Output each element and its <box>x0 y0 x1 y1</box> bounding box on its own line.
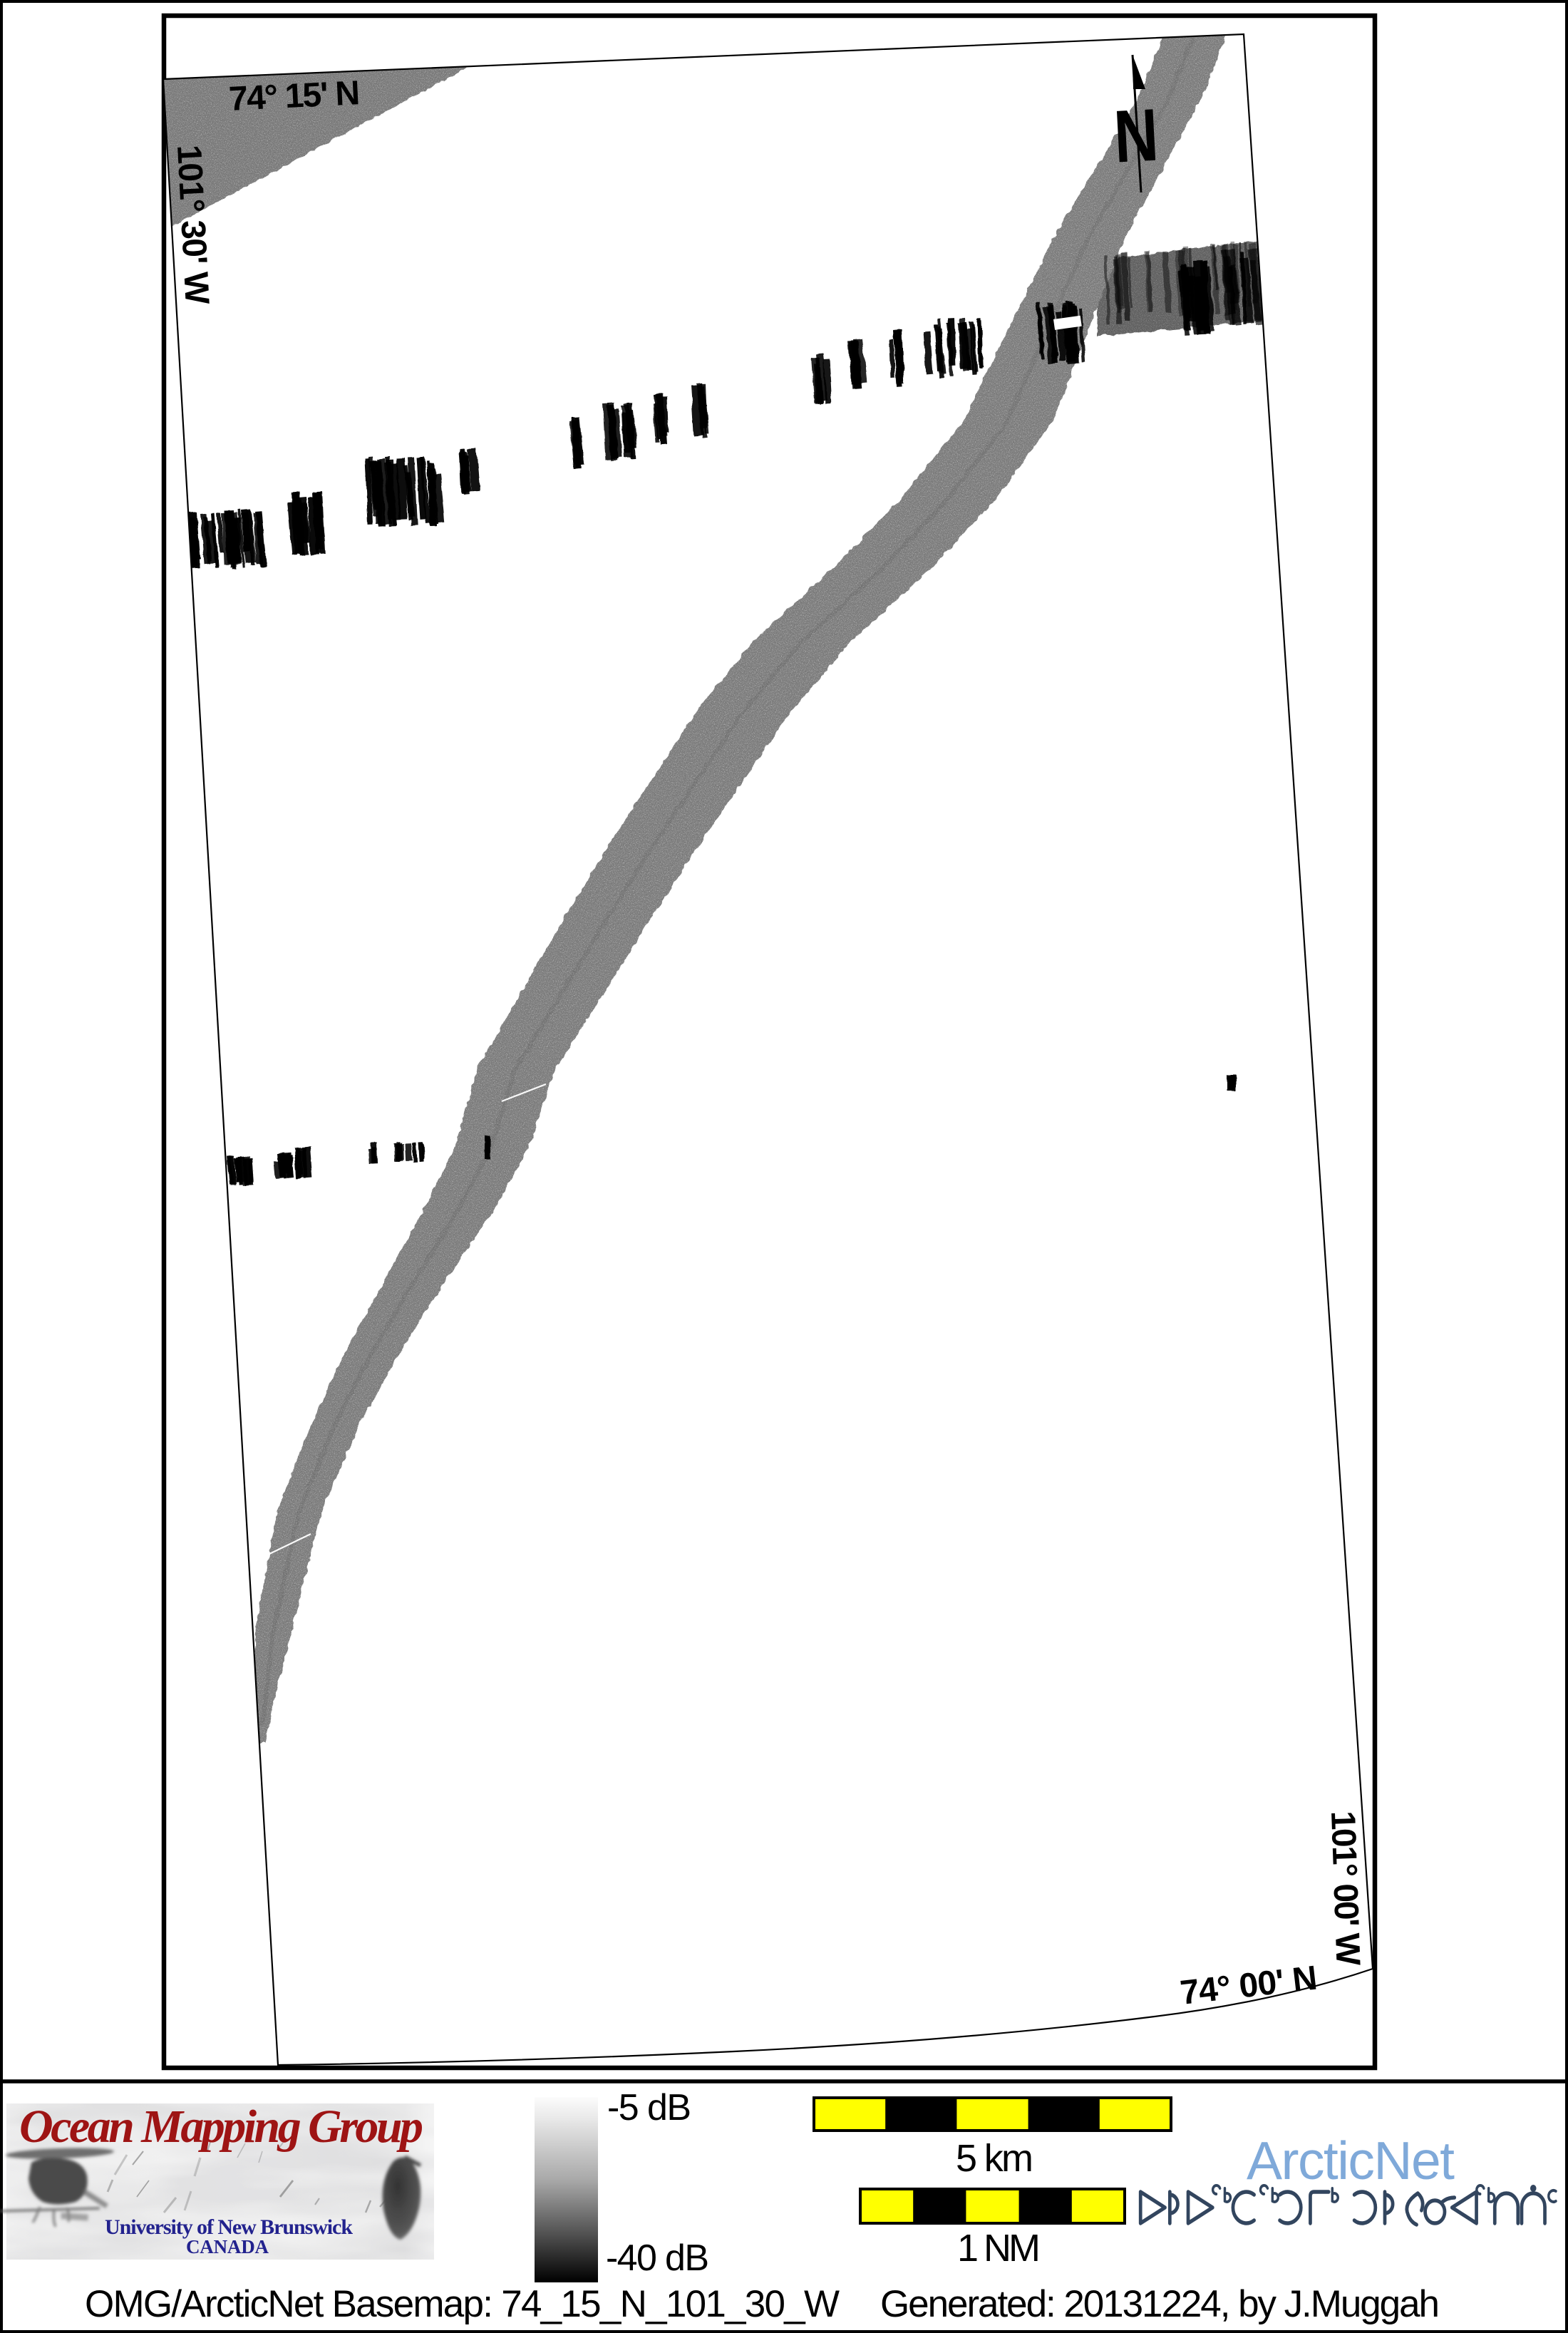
svg-text:N: N <box>1112 94 1160 179</box>
svg-text:Ocean Mapping Group: Ocean Mapping Group <box>19 2101 423 2153</box>
svg-text:OMG/ArcticNet Basemap: 74_15_N: OMG/ArcticNet Basemap: 74_15_N_101_30_W <box>85 2283 840 2325</box>
svg-text:Generated: 20131224, by J.Mugg: Generated: 20131224, by J.Muggah <box>880 2283 1440 2325</box>
svg-text:74° 15' N: 74° 15' N <box>228 74 361 118</box>
svg-text:1 NM: 1 NM <box>957 2227 1041 2270</box>
svg-text:-40 dB: -40 dB <box>606 2237 709 2279</box>
svg-text:ArcticNet: ArcticNet <box>1247 2131 1455 2190</box>
svg-text:101° 00' W: 101° 00' W <box>1324 1811 1367 1967</box>
svg-text:-5 dB: -5 dB <box>607 2087 691 2128</box>
svg-text:5 km: 5 km <box>956 2137 1033 2180</box>
svg-text:CANADA: CANADA <box>186 2236 269 2257</box>
